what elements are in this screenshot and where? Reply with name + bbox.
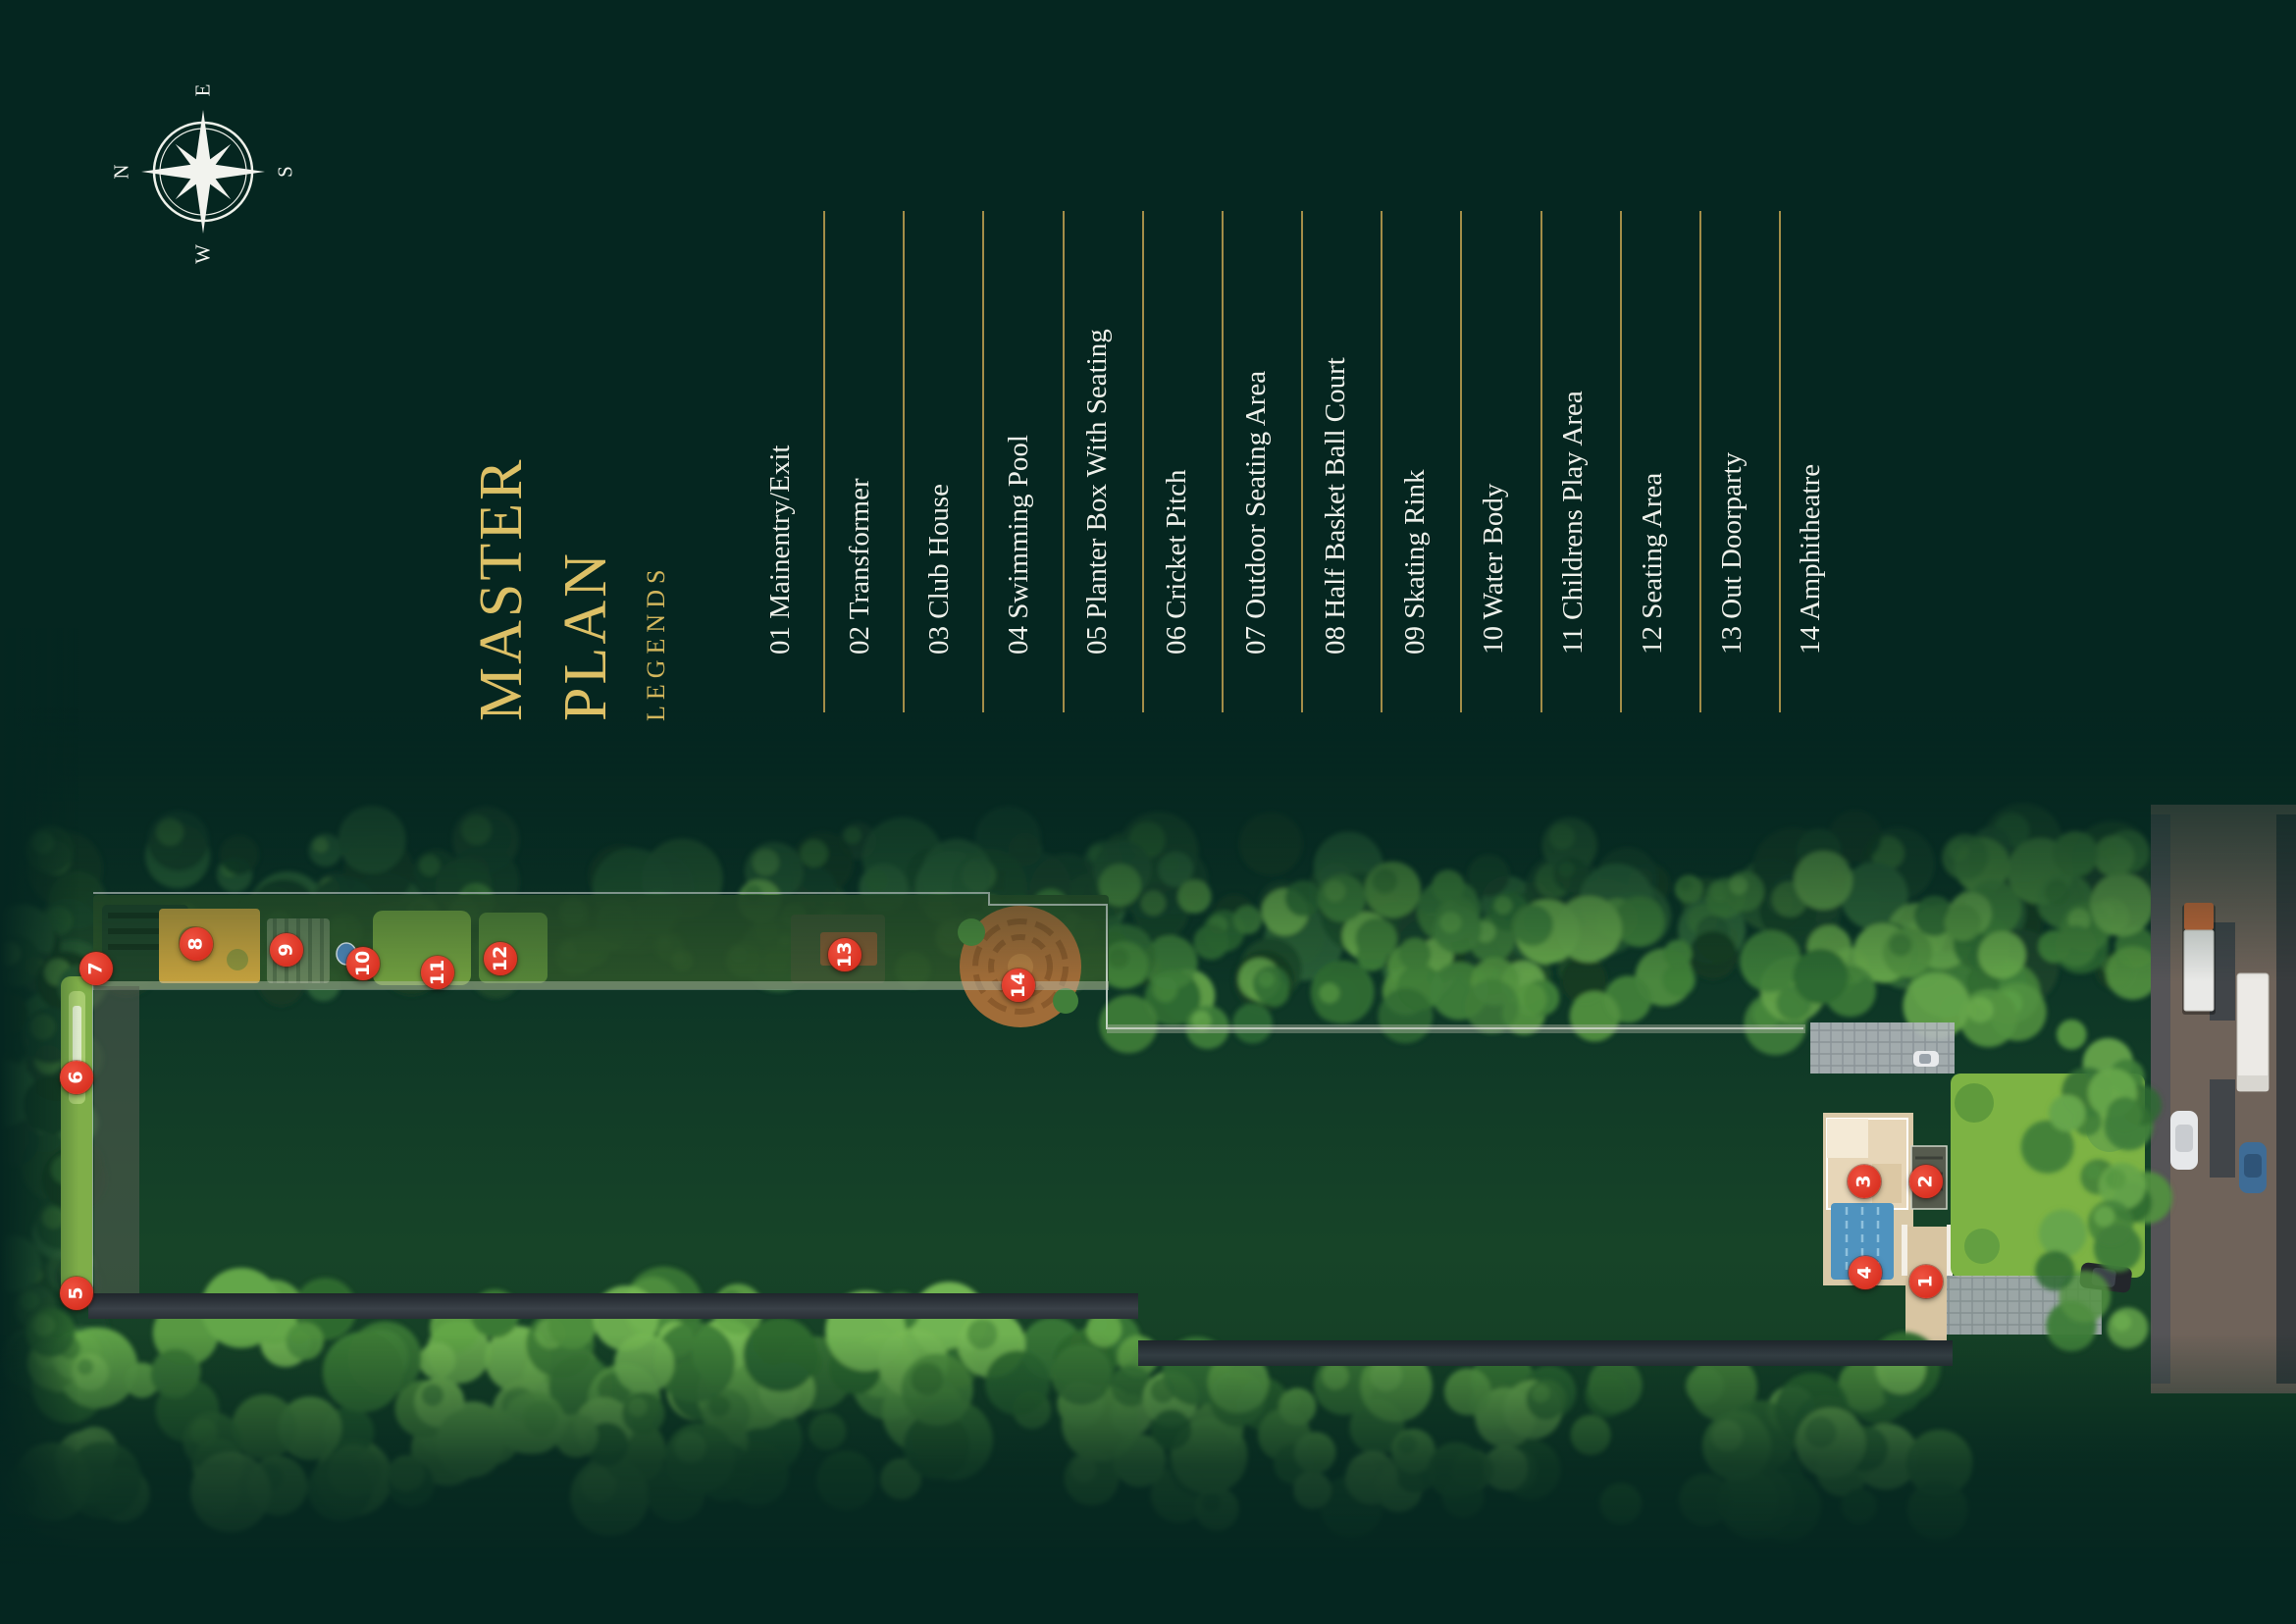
compass-letter-S: S: [274, 166, 298, 178]
legend-item-03: 03 Club House: [922, 484, 956, 655]
legend-item-05: 05 Planter Box With Seating: [1080, 329, 1114, 655]
legend-separator-line: [1142, 211, 1144, 712]
marker-14: 14: [1002, 969, 1035, 1002]
marker-12: 12: [484, 942, 517, 975]
legend-separator-line: [1540, 211, 1542, 712]
legend-separator-line: [1381, 211, 1383, 712]
marker-4: 4: [1849, 1256, 1882, 1289]
marker-8: 8: [180, 927, 213, 961]
site-plan-rendering: [0, 0, 2296, 1624]
marker-2: 2: [1909, 1165, 1943, 1198]
truck-orange-cab: [2182, 903, 2216, 1015]
compass-rose-icon: [139, 108, 267, 236]
legend-item-02: 02 Transformer: [843, 478, 876, 655]
truck-white-container: [2237, 973, 2269, 1091]
marker-7: 7: [79, 952, 113, 985]
legend-item-10: 10 Water Body: [1477, 484, 1510, 655]
legend-separator-line: [1699, 211, 1701, 712]
legend-item-13: 13 Out Doorparty: [1715, 452, 1748, 655]
walkway-left: [93, 981, 1109, 990]
car-blue: [2239, 1142, 2267, 1193]
marker-3: 3: [1848, 1165, 1881, 1198]
marker-13: 13: [828, 938, 861, 971]
page-title-line1: MASTER: [471, 457, 532, 721]
car-white: [2170, 1111, 2198, 1170]
internal-road-east: [1138, 1340, 1953, 1366]
marker-number: 5: [66, 1286, 87, 1299]
marker-number: 9: [276, 943, 297, 956]
marker-number: 1: [1915, 1275, 1937, 1287]
legend-item-12: 12 Seating Area: [1636, 473, 1669, 655]
marker-11: 11: [421, 956, 454, 989]
legend-separator-line: [1063, 211, 1065, 712]
legend-item-08: 08 Half Basket Ball Court: [1319, 357, 1352, 655]
legend-separator-line: [1222, 211, 1224, 712]
marker-number: 11: [427, 960, 448, 985]
marker-number: 10: [352, 951, 374, 976]
compass-letter-E: E: [191, 84, 216, 97]
marker-number: 14: [1008, 972, 1029, 998]
marker-number: 4: [1854, 1266, 1876, 1279]
public-road: [2151, 805, 2296, 1393]
legend-separator-line: [823, 211, 825, 712]
legend-separator-line: [982, 211, 984, 712]
legend-item-11: 11 Childrens Play Area: [1556, 391, 1590, 655]
car-on-plaza: [1913, 1051, 1939, 1067]
compass-letter-N: N: [110, 164, 134, 179]
legend-item-07: 07 Outdoor Seating Area: [1239, 371, 1273, 655]
legends-heading: LEGENDS: [643, 564, 670, 721]
legend-item-04: 04 Swimming Pool: [1002, 435, 1035, 655]
walkway-right: [1107, 1024, 1805, 1033]
marker-number: 3: [1853, 1175, 1875, 1187]
marker-number: 6: [66, 1071, 87, 1083]
marker-5: 5: [60, 1277, 93, 1310]
legend-separator-line: [1779, 211, 1781, 712]
legend-item-01: 01 Mainentry/Exit: [763, 445, 797, 655]
marker-number: 13: [834, 942, 856, 968]
internal-road-west: [88, 1293, 1138, 1319]
legend-separator-line: [1301, 211, 1303, 712]
marker-number: 2: [1915, 1175, 1937, 1187]
legend-separator-line: [1620, 211, 1622, 712]
amenity-band: [93, 895, 1109, 989]
page-title-line2: PLAN: [555, 550, 616, 721]
legend-item-14: 14 Amphitheatre: [1794, 464, 1827, 655]
cricket-pitch-strip: [61, 976, 92, 1297]
marker-number: 7: [85, 962, 107, 974]
marker-number: 8: [185, 937, 207, 950]
marker-1: 1: [1909, 1265, 1943, 1298]
marker-10: 10: [346, 947, 380, 980]
west-service-path: [94, 986, 139, 1295]
master-plan-page: 2019181716151413121110921222324252627282…: [0, 0, 2296, 1624]
marker-number: 12: [490, 946, 511, 971]
marker-6: 6: [60, 1061, 93, 1094]
legend-item-06: 06 Cricket Pitch: [1160, 470, 1193, 655]
compass-letter-W: W: [191, 244, 216, 264]
legend-item-09: 09 Skating Rink: [1398, 469, 1432, 655]
marker-9: 9: [270, 933, 303, 967]
legend-separator-line: [903, 211, 905, 712]
legend-separator-line: [1460, 211, 1462, 712]
